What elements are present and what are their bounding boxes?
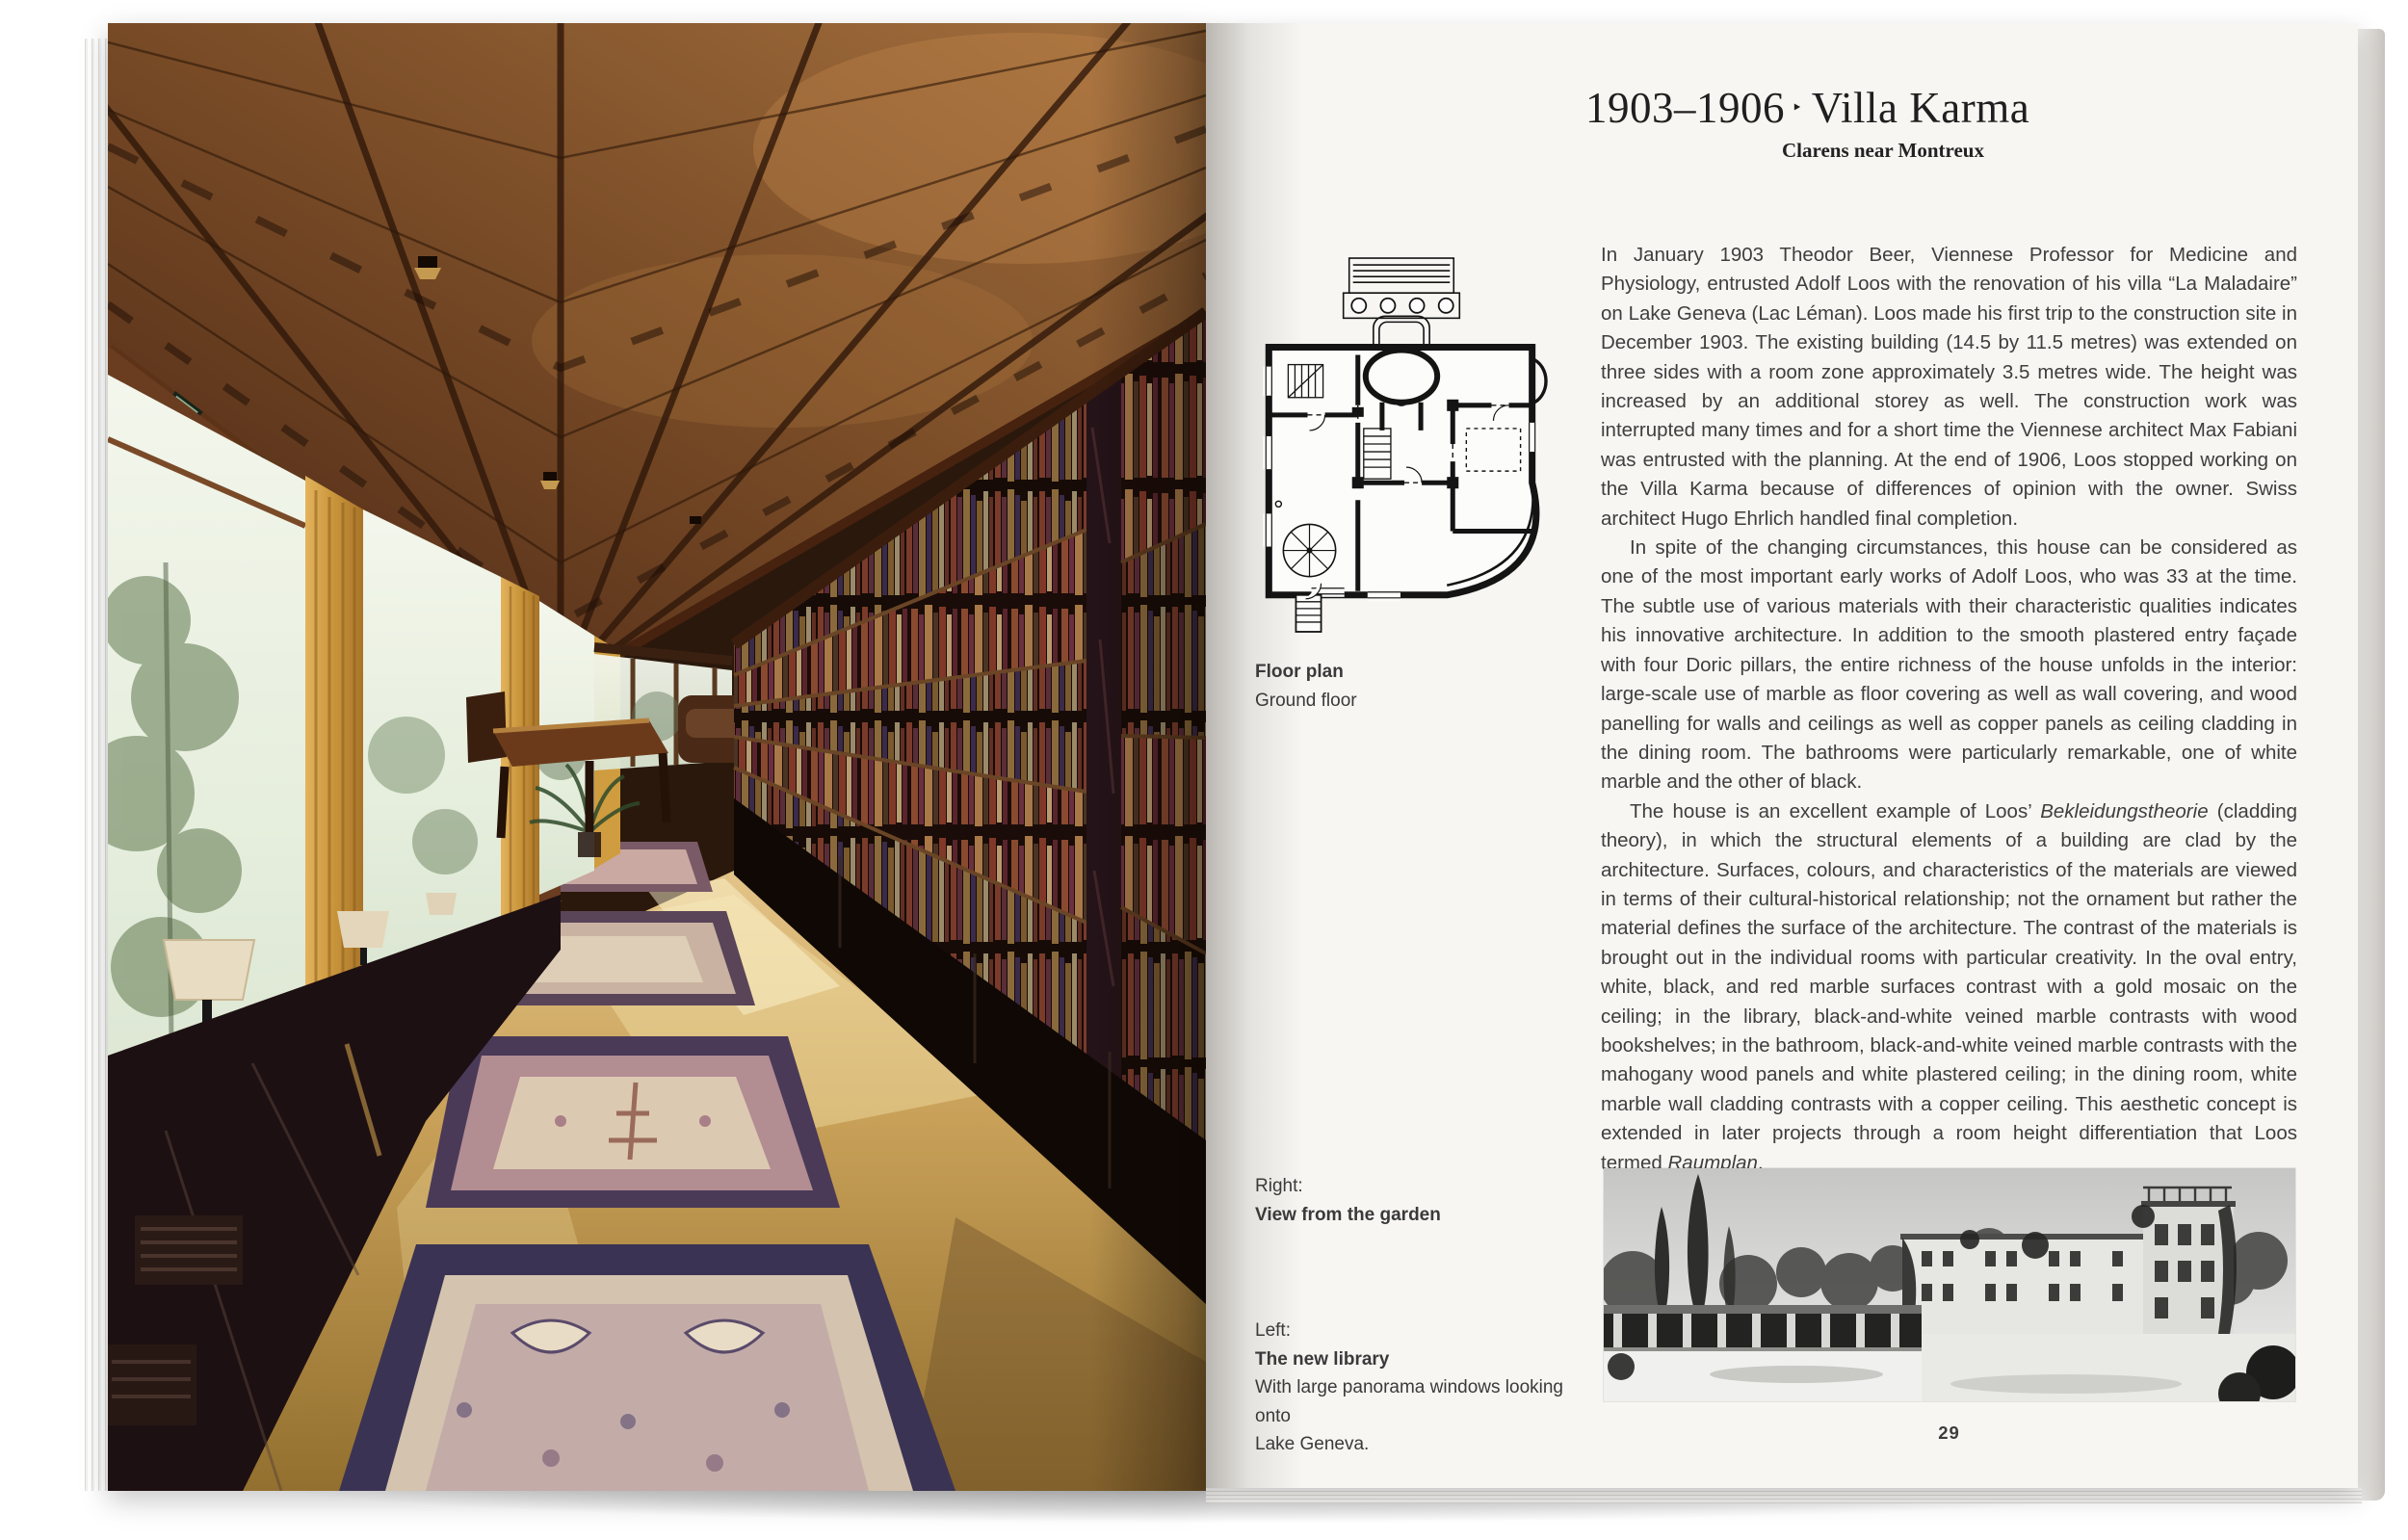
floor-plan-figure [1248, 250, 1558, 638]
caption-left-label: Left: [1255, 1320, 1291, 1341]
doric-columns [1351, 299, 1453, 313]
floor-plan-caption-subtitle: Ground floor [1255, 691, 1357, 711]
p3-italic-term-1: Bekleidungstheorie [2040, 800, 2208, 822]
caption-new-library: Left: The new library With large panoram… [1255, 1317, 1587, 1459]
page-number: 29 [1601, 1423, 2297, 1444]
floor-plan-svg [1248, 250, 1558, 638]
caption-right-title: View from the garden [1255, 1205, 1441, 1225]
chapter-subtitle: Clarens near Montreux [1585, 139, 1984, 163]
spiral-stair [1283, 524, 1335, 576]
page-edges-bottom [1206, 1488, 2362, 1503]
body-text-column: In January 1903 Theodor Beer, Viennese P… [1601, 241, 2297, 1178]
oval-hall [1366, 351, 1437, 403]
garden-colonnade [1604, 1305, 1922, 1353]
book-spread-photo: 1903–1906‣Villa Karma Clarens near Montr… [0, 0, 2408, 1540]
left-page-library-photo [108, 23, 1206, 1491]
caption-left-line2: Lake Geneva. [1255, 1434, 1369, 1454]
title-separator-glyph: ‣ [1792, 98, 1803, 118]
page-edges-left [81, 39, 108, 1491]
caption-view-from-garden: Right: View from the garden [1255, 1172, 1573, 1229]
gutter-shade-right-page [1206, 23, 1322, 1488]
book-cover-edge [2358, 29, 2385, 1501]
floor-plan-caption-title: Floor plan [1255, 662, 1344, 682]
chapter-title: 1903–1906‣Villa Karma [1585, 83, 2317, 133]
villa-photo-svg [1604, 1168, 2295, 1401]
p3-text: The house is an excellent example of Loo… [1630, 800, 2040, 822]
floor-plan-caption: Floor plan Ground floor [1255, 658, 1573, 715]
caption-left-line1: With large panorama windows looking onto [1255, 1377, 1563, 1426]
caption-right-label: Right: [1255, 1176, 1303, 1196]
gutter-shade-left-page [1090, 23, 1206, 1491]
paragraph-3: The house is an excellent example of Loo… [1601, 797, 2297, 1178]
caption-left-title: The new library [1255, 1349, 1389, 1370]
p3-text-2: (cladding theory), in which the structur… [1601, 800, 2297, 1174]
library-photo-svg [108, 23, 1206, 1491]
paragraph-1: In January 1903 Theodor Beer, Viennese P… [1601, 241, 2297, 534]
villa-garden-photo [1604, 1168, 2295, 1401]
paragraph-2: In spite of the changing circumstances, … [1601, 534, 2297, 797]
title-name: Villa Karma [1812, 84, 2029, 132]
title-years: 1903–1906 [1585, 84, 1785, 132]
